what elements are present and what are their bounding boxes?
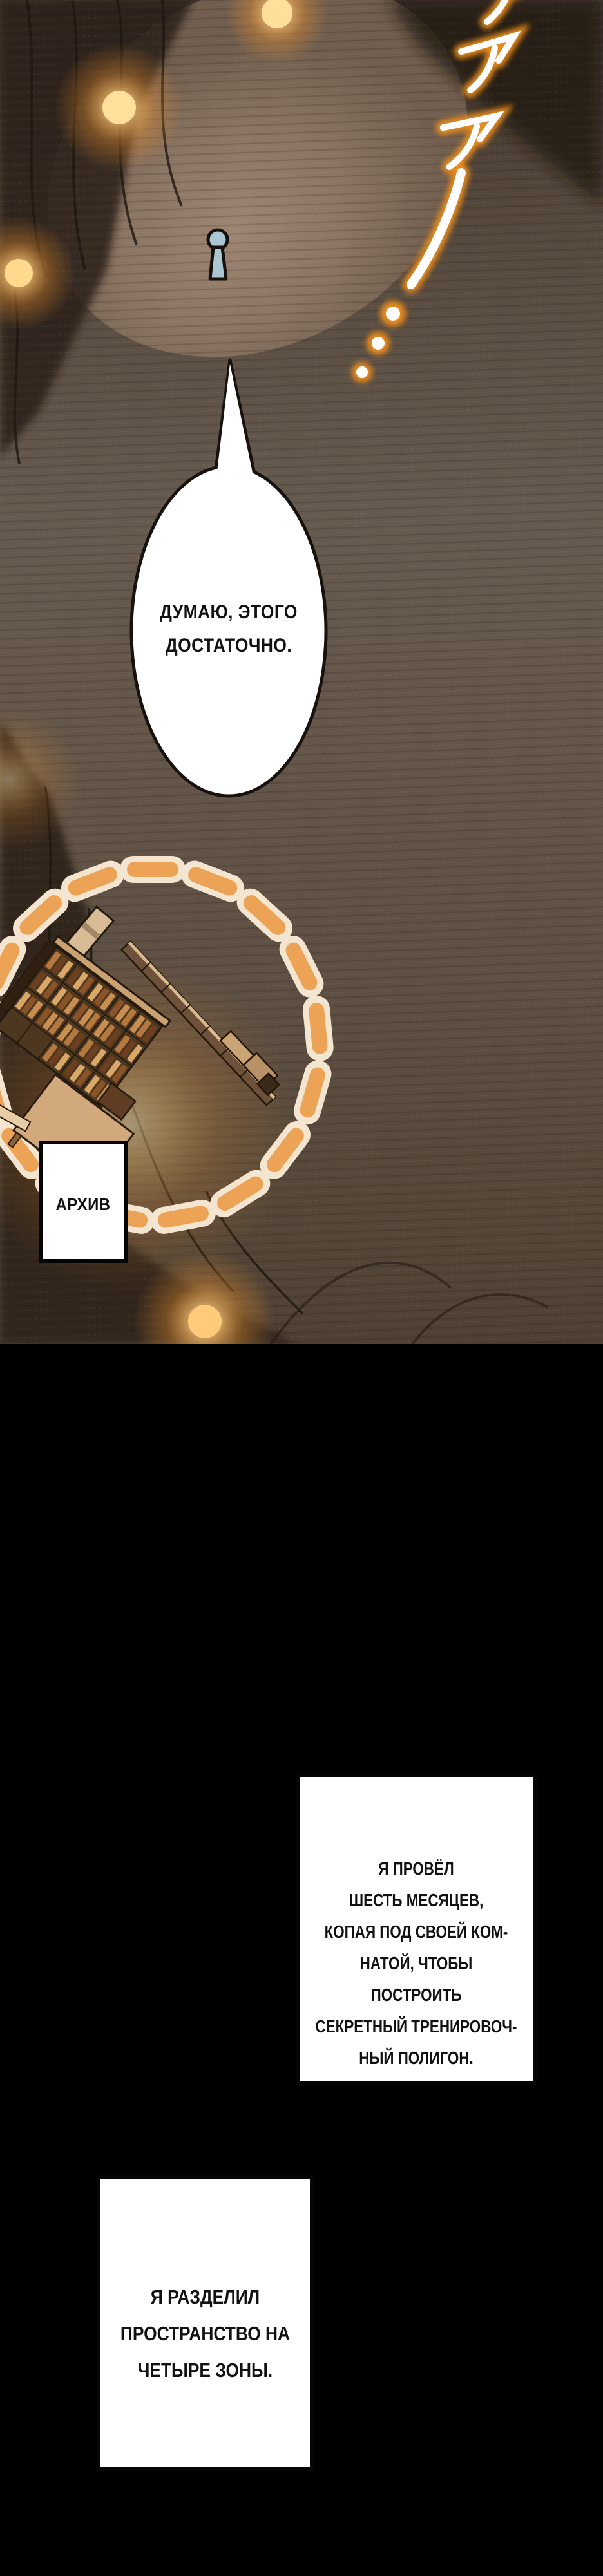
archive-label-box: АРХИВ: [39, 1141, 128, 1263]
speech-bubble-text: ДУМАЮ, ЭТОГО ДОСТАТОЧНО.: [144, 596, 314, 663]
caption-text-2: Я РАЗДЕЛИЛ ПРОСТРАНСТВО НА ЧЕТЫРЕ ЗОНЫ.: [105, 2278, 305, 2389]
caption-box-1: Я ПРОВЁЛ ШЕСТЬ МЕСЯЦЕВ, КОПАЯ ПОД СВОЕЙ …: [296, 1773, 537, 2085]
caption-box-2: Я РАЗДЕЛИЛ ПРОСТРАНСТВО НА ЧЕТЫРЕ ЗОНЫ.: [97, 2175, 314, 2471]
cave-panel: ДУМАЮ, ЭТОГО ДОСТАТОЧНО. АРХИВ: [0, 0, 603, 1344]
archive-label: АРХИВ: [46, 1195, 120, 1215]
keyhole-icon: [208, 230, 227, 279]
caption-text-1: Я ПРОВЁЛ ШЕСТЬ МЕСЯЦЕВ, КОПАЯ ПОД СВОЕЙ …: [313, 1853, 519, 2074]
